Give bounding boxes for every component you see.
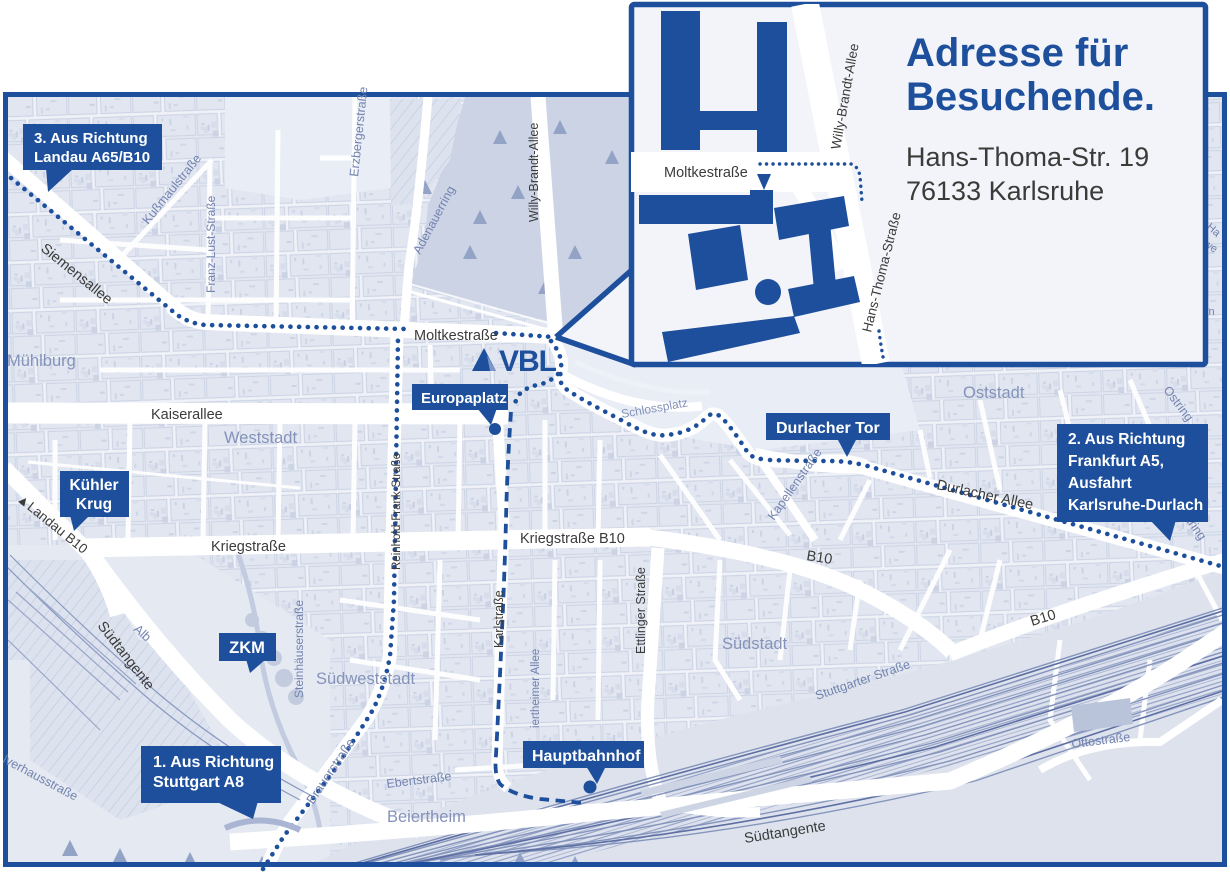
svg-text:Mühlburg: Mühlburg: [7, 352, 76, 370]
svg-text:Europaplatz: Europaplatz: [421, 390, 507, 407]
svg-text:Ettlinger Straße: Ettlinger Straße: [634, 567, 648, 654]
svg-text:Südstadt: Südstadt: [722, 635, 788, 653]
svg-text:Durlacher Tor: Durlacher Tor: [776, 420, 880, 437]
svg-text:76133 Karlsruhe: 76133 Karlsruhe: [906, 176, 1104, 206]
svg-text:VBL: VBL: [499, 345, 557, 378]
svg-text:Moltkestraße: Moltkestraße: [414, 328, 498, 344]
svg-text:Oststadt: Oststadt: [963, 384, 1025, 402]
svg-text:Adresse für: Adresse für: [906, 31, 1128, 75]
svg-text:Franz-Lust-Straße: Franz-Lust-Straße: [204, 195, 218, 293]
svg-text:ZKM: ZKM: [229, 639, 265, 657]
svg-text:Besuchende.: Besuchende.: [906, 75, 1155, 119]
svg-text:Willy-Brandt-Allee: Willy-Brandt-Allee: [527, 123, 541, 222]
svg-text:Landau A65/B10: Landau A65/B10: [34, 149, 150, 166]
svg-text:Kühler: Kühler: [69, 477, 118, 494]
svg-text:Hauptbahnhof: Hauptbahnhof: [532, 748, 641, 765]
svg-text:Südweststadt: Südweststadt: [316, 670, 415, 688]
svg-text:Karlstraße: Karlstraße: [492, 590, 506, 648]
svg-text:Reinhold-Frank-Straße: Reinhold-Frank-Straße: [391, 453, 403, 570]
svg-text:Kriegstraße B10: Kriegstraße B10: [520, 531, 625, 547]
svg-text:Weststadt: Weststadt: [224, 429, 297, 447]
svg-text:Frankfurt A5,: Frankfurt A5,: [1068, 453, 1164, 470]
svg-text:3. Aus Richtung: 3. Aus Richtung: [34, 130, 148, 147]
svg-text:Steinhäuserstraße: Steinhäuserstraße: [292, 600, 306, 698]
svg-text:iertheimer Allee: iertheimer Allee: [530, 649, 542, 728]
svg-text:Ausfahrt: Ausfahrt: [1068, 475, 1132, 492]
svg-text:Moltkestraße: Moltkestraße: [664, 165, 748, 181]
svg-text:1. Aus Richtung: 1. Aus Richtung: [153, 754, 274, 771]
svg-text:Beiertheim: Beiertheim: [387, 808, 466, 826]
svg-text:Karlsruhe-Durlach: Karlsruhe-Durlach: [1068, 497, 1203, 514]
svg-text:Krug: Krug: [76, 496, 112, 513]
svg-text:Hans-Thoma-Str. 19: Hans-Thoma-Str. 19: [906, 142, 1149, 172]
svg-text:Stuttgart A8: Stuttgart A8: [153, 774, 244, 791]
svg-text:Kaiserallee: Kaiserallee: [151, 407, 223, 423]
svg-text:Kriegstraße: Kriegstraße: [211, 539, 286, 555]
svg-text:2. Aus Richtung: 2. Aus Richtung: [1068, 431, 1185, 448]
